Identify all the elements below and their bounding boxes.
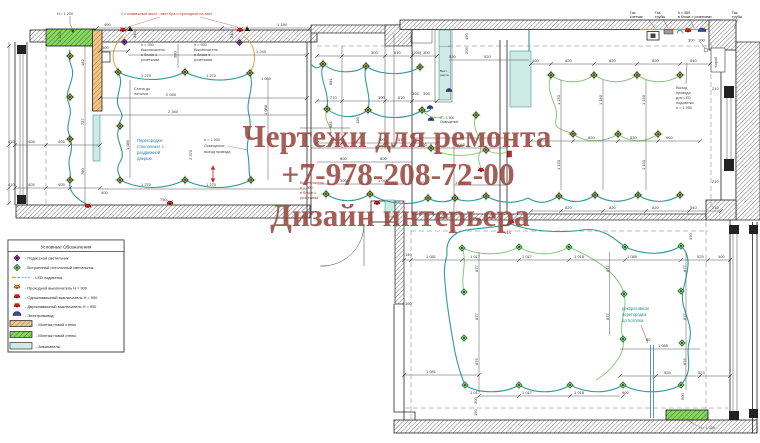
svg-text:розетками: розетками xyxy=(194,58,212,62)
svg-text:820: 820 xyxy=(609,205,616,210)
svg-text:820: 820 xyxy=(565,205,572,210)
svg-text:160: 160 xyxy=(405,301,412,306)
svg-text:1 150: 1 150 xyxy=(556,159,561,170)
svg-text:300: 300 xyxy=(688,38,695,43)
svg-text:в блоке с: в блоке с xyxy=(194,53,210,57)
svg-text:525: 525 xyxy=(697,254,704,259)
svg-text:330: 330 xyxy=(688,233,693,240)
svg-text:дверью: дверью xyxy=(137,156,152,161)
svg-text:стеклопакет с: стеклопакет с xyxy=(137,144,164,149)
svg-text:Выключатель: Выключатель xyxy=(141,48,165,52)
svg-text:H = 1 200: H = 1 200 xyxy=(699,426,715,430)
svg-text:перегородка: перегородка xyxy=(622,312,647,317)
svg-text:1 120: 1 120 xyxy=(57,31,62,42)
svg-text:1 150: 1 150 xyxy=(641,94,646,105)
svg-text:Дизайн интерьера: Дизайн интерьера xyxy=(270,198,530,233)
svg-text:1 080: 1 080 xyxy=(261,76,272,81)
svg-text:выход провода: выход провода xyxy=(204,150,231,154)
svg-text:1 150: 1 150 xyxy=(641,159,646,170)
svg-text:1 085: 1 085 xyxy=(627,254,638,259)
svg-text:1 085: 1 085 xyxy=(658,343,669,348)
svg-text:900: 900 xyxy=(622,390,629,395)
svg-text:Чертежи для ремонта: Чертежи для ремонта xyxy=(242,119,551,154)
svg-text:до потолка: до потолка xyxy=(622,318,644,323)
svg-text:h = 930: h = 930 xyxy=(194,43,207,47)
svg-text:600: 600 xyxy=(680,393,685,400)
svg-text:830: 830 xyxy=(630,135,637,140)
svg-text:подсветки: подсветки xyxy=(676,101,694,105)
svg-text:500: 500 xyxy=(102,45,109,50)
svg-text:400: 400 xyxy=(101,190,108,195)
svg-text:Выключатель: Выключатель xyxy=(194,48,218,52)
svg-text:2 х клавишный выкл - свет бра: 2 х клавишный выкл - свет бра и проходно… xyxy=(121,12,212,16)
svg-text:2 040: 2 040 xyxy=(166,92,177,97)
svg-text:2 370: 2 370 xyxy=(188,149,193,160)
svg-text:240: 240 xyxy=(132,31,137,38)
svg-text:380: 380 xyxy=(173,51,178,58)
svg-text:540: 540 xyxy=(690,205,697,210)
svg-text:510: 510 xyxy=(394,50,401,55)
svg-text:877: 877 xyxy=(605,265,610,272)
svg-text:210: 210 xyxy=(712,205,719,210)
svg-text:Выход: Выход xyxy=(676,86,688,90)
svg-text:210: 210 xyxy=(712,86,719,91)
svg-text:Короб: Короб xyxy=(714,56,718,68)
svg-text:525: 525 xyxy=(664,370,671,375)
svg-text:1 081: 1 081 xyxy=(426,254,437,259)
svg-text:потолка: потолка xyxy=(134,92,149,96)
svg-text:209: 209 xyxy=(464,47,469,54)
svg-text:240: 240 xyxy=(229,31,234,38)
svg-text:820: 820 xyxy=(652,58,659,63)
svg-text:1 240: 1 240 xyxy=(256,49,267,54)
svg-text:405: 405 xyxy=(58,139,65,144)
svg-text:провода: провода xyxy=(676,91,691,95)
svg-text:Перегородки-: Перегородки- xyxy=(137,138,164,143)
svg-text:- Подвесной светильник: - Подвесной светильник xyxy=(25,256,69,261)
svg-text:820: 820 xyxy=(652,205,659,210)
svg-text:1 081: 1 081 xyxy=(426,369,437,374)
svg-text:140: 140 xyxy=(405,252,412,257)
svg-text:1 270: 1 270 xyxy=(206,73,217,78)
svg-text:540: 540 xyxy=(690,58,697,63)
svg-text:1 018: 1 018 xyxy=(574,254,585,259)
svg-text:- Электровывод: - Электровывод xyxy=(25,313,54,318)
svg-text:- Проходной выключатель Н = 90: - Проходной выключатель Н = 900 xyxy=(25,286,88,291)
svg-text:в блоке с: в блоке с xyxy=(141,53,157,57)
svg-text:520: 520 xyxy=(449,54,456,59)
svg-text:410: 410 xyxy=(8,139,15,144)
svg-text:881: 881 xyxy=(328,78,333,85)
svg-text:877: 877 xyxy=(474,313,479,320)
svg-text:820: 820 xyxy=(609,58,616,63)
svg-text:210: 210 xyxy=(712,179,719,184)
svg-text:+7-978-208-72-00: +7-978-208-72-00 xyxy=(281,157,514,192)
svg-text:1 180: 1 180 xyxy=(277,22,288,27)
svg-text:1 017: 1 017 xyxy=(522,254,533,259)
svg-text:510: 510 xyxy=(398,95,405,100)
svg-text:Стена до: Стена до xyxy=(134,87,150,91)
svg-text:Освещение,: Освещение, xyxy=(204,144,226,148)
svg-text:1 150: 1 150 xyxy=(556,94,561,105)
svg-text:1 270: 1 270 xyxy=(141,73,152,78)
svg-text:шахта: шахта xyxy=(440,73,449,77)
svg-text:305: 305 xyxy=(423,91,430,96)
svg-text:300: 300 xyxy=(371,50,378,55)
svg-text:1 018: 1 018 xyxy=(574,390,585,395)
svg-text:H = 1 200: H = 1 200 xyxy=(57,12,73,16)
svg-text:для LED: для LED xyxy=(676,96,691,100)
svg-text:h = 1 900: h = 1 900 xyxy=(204,138,220,142)
svg-text:300: 300 xyxy=(423,50,430,55)
svg-text:1 017: 1 017 xyxy=(522,390,533,395)
svg-text:410: 410 xyxy=(8,182,15,187)
svg-text:1 085: 1 085 xyxy=(125,139,130,150)
svg-text:877: 877 xyxy=(605,313,610,320)
svg-text:100: 100 xyxy=(698,38,705,43)
svg-text:150: 150 xyxy=(473,409,478,416)
svg-text:780: 780 xyxy=(80,168,85,175)
svg-text:400: 400 xyxy=(718,254,725,259)
svg-text:- Встроенный потолочный светил: - Встроенный потолочный светильник xyxy=(25,265,94,270)
svg-text:400: 400 xyxy=(532,58,539,63)
svg-text:1 180: 1 180 xyxy=(598,94,603,105)
svg-text:877: 877 xyxy=(474,265,479,272)
svg-text:300: 300 xyxy=(378,95,385,100)
svg-text:960: 960 xyxy=(666,135,673,140)
svg-text:877: 877 xyxy=(682,313,687,320)
svg-text:820: 820 xyxy=(588,135,595,140)
svg-text:1 270: 1 270 xyxy=(141,182,152,187)
svg-text:декоративная: декоративная xyxy=(622,306,649,311)
svg-text:1 088: 1 088 xyxy=(263,104,268,115)
svg-text:трубы: трубы xyxy=(655,15,665,19)
svg-text:405: 405 xyxy=(58,182,65,187)
svg-text:трубы: трубы xyxy=(732,15,742,19)
svg-text:490: 490 xyxy=(104,22,111,27)
svg-text:- Монтаж новой стены: - Монтаж новой стены xyxy=(36,333,76,338)
svg-text:770: 770 xyxy=(330,95,337,100)
svg-text:490: 490 xyxy=(464,33,469,40)
svg-text:820: 820 xyxy=(565,58,572,63)
svg-text:305: 305 xyxy=(412,91,419,96)
svg-text:405: 405 xyxy=(28,139,35,144)
svg-text:- Одноклавишный выключатель Н: - Одноклавишный выключатель Н = 900 xyxy=(25,295,98,300)
svg-text:877: 877 xyxy=(682,265,687,272)
svg-text:h = 930: h = 930 xyxy=(141,43,154,47)
svg-text:1 270: 1 270 xyxy=(206,182,217,187)
svg-text:счетчик: счетчик xyxy=(630,15,643,19)
svg-text:80: 80 xyxy=(646,337,651,342)
svg-text:876: 876 xyxy=(474,358,479,365)
svg-text:- LED подсветка: - LED подсветка xyxy=(33,275,63,280)
svg-text:- Монтаж новой стены: - Монтаж новой стены xyxy=(36,322,76,327)
svg-text:405: 405 xyxy=(28,182,35,187)
svg-text:- Аквапанели: - Аквапанели xyxy=(36,344,60,349)
svg-text:520: 520 xyxy=(484,54,491,59)
svg-text:розетками: розетками xyxy=(141,58,159,62)
svg-text:- Двухклавишный выключатель Н: - Двухклавишный выключатель Н = 900 xyxy=(25,304,97,309)
svg-text:раздвижной: раздвижной xyxy=(137,150,161,155)
svg-text:Условные Обозначения: Условные Обозначения xyxy=(41,244,92,249)
svg-text:2 340: 2 340 xyxy=(168,109,179,114)
svg-text:h = 1 950: h = 1 950 xyxy=(676,106,692,110)
svg-text:1 017: 1 017 xyxy=(470,390,481,395)
svg-text:750: 750 xyxy=(160,197,167,202)
svg-text:182: 182 xyxy=(80,59,85,66)
svg-text:в блоке с розетками: в блоке с розетками xyxy=(678,15,712,19)
svg-text:876: 876 xyxy=(682,358,687,365)
svg-text:787: 787 xyxy=(80,118,85,125)
